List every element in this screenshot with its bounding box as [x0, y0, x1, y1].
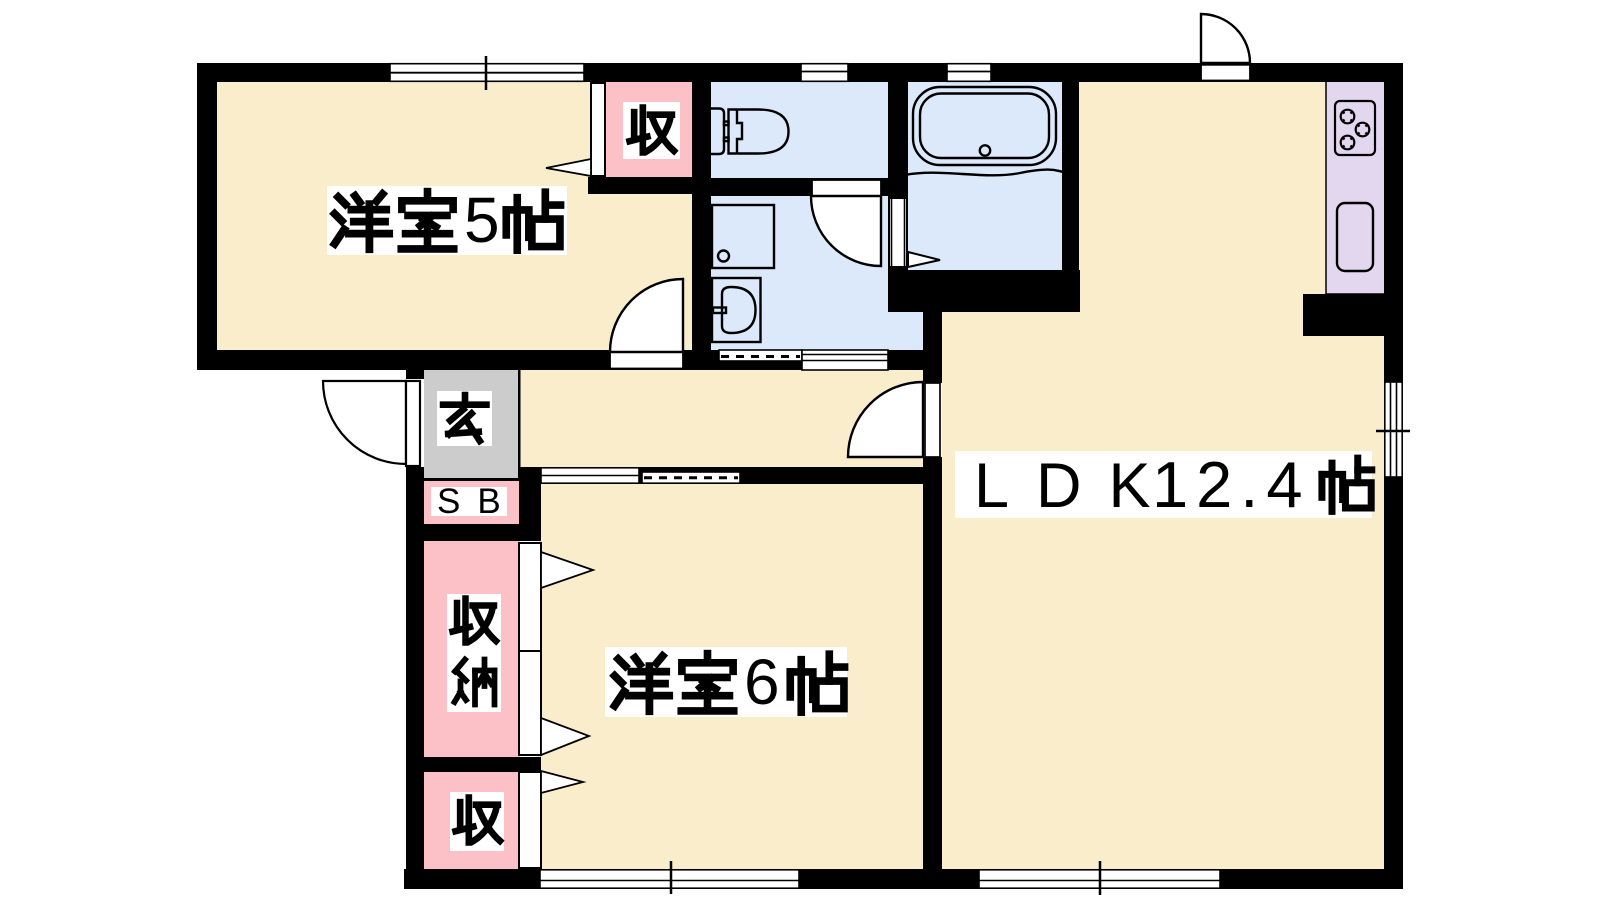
svg-text:5: 5: [464, 184, 500, 256]
svg-text:LDK: LDK: [974, 451, 1178, 521]
svg-text:6: 6: [744, 646, 780, 718]
svg-text:SB: SB: [437, 482, 518, 521]
svg-text:12.4: 12.4: [1152, 448, 1311, 521]
